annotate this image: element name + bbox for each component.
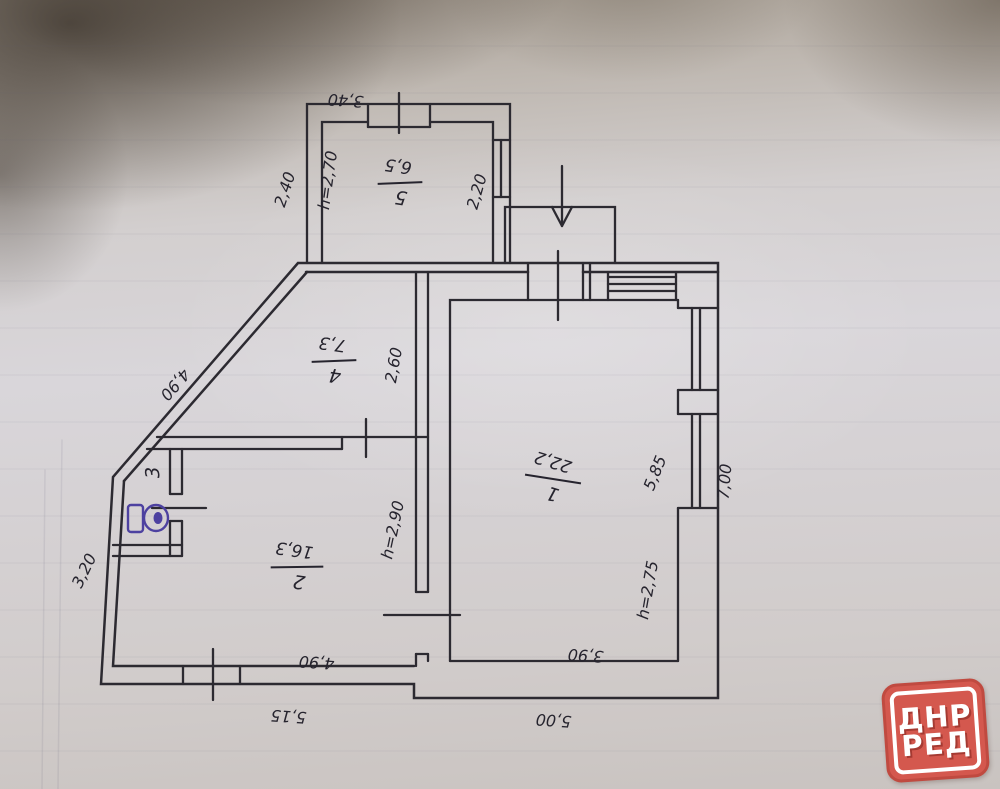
room1-label: 1 22,2 (519, 445, 588, 511)
dimension-labels: 3,40 2,40 2,20 4,90 3,20 2,60 5,85 7,00 … (68, 90, 736, 731)
room1-height: h=2,75 (633, 559, 662, 621)
interior-walls (113, 263, 678, 666)
room5-label: 5 6,5 (375, 153, 426, 211)
entrance-porch (505, 207, 615, 263)
floor-plan-drawing: 3,40 2,40 2,20 4,90 3,20 2,60 5,85 7,00 … (0, 0, 1000, 789)
dim-room1-bottom: 3,90 (567, 645, 604, 666)
dim-bottom-left: 5,15 (270, 706, 307, 727)
room-labels: 1 22,2 h=2,75 2 16,3 h=2,90 3 4 7,3 5 (142, 150, 663, 621)
dim-diagonal-wall: 4,90 (156, 365, 194, 404)
photographed-paper: 3,40 2,40 2,20 4,90 3,20 2,60 5,85 7,00 … (0, 0, 1000, 789)
room5-area: 6,5 (384, 154, 414, 178)
room2-label: 2 16,3 (268, 537, 327, 596)
room4-label: 4 7,3 (309, 331, 360, 389)
watermark-frame: ДНР РЕД (889, 686, 982, 775)
room2-height: h=2,90 (377, 499, 408, 561)
door-ticks (152, 93, 558, 700)
room5-height: h=2,70 (314, 150, 341, 211)
paper-bleed-lines (42, 440, 62, 789)
dim-right-wall: 7,00 (714, 463, 736, 500)
room3-number: 3 (142, 466, 165, 480)
room1-number: 1 (544, 481, 562, 506)
dim-room2-bottom: 4,90 (298, 652, 335, 673)
dim-hall-width: 2,60 (381, 346, 406, 384)
watermark-line2: РЕД (901, 728, 973, 759)
room1-area: 22,2 (532, 446, 574, 476)
dim-bottom-right: 5,00 (535, 710, 572, 731)
watermark-stamp: ДНР РЕД (881, 678, 991, 784)
room2-number: 2 (291, 570, 306, 593)
room4-area: 7,3 (318, 332, 348, 356)
room5-number: 5 (394, 186, 409, 209)
dim-room5-left: 2,40 (270, 169, 299, 209)
dim-room1-right: 5,85 (639, 453, 670, 493)
dim-left-wall: 3,20 (68, 550, 101, 590)
dim-room5-top: 3,40 (327, 90, 364, 111)
entrance-arrow-icon (552, 166, 572, 226)
dim-room5-right: 2,20 (463, 172, 491, 211)
room2-area: 16,3 (274, 537, 314, 562)
building-outline (101, 263, 718, 698)
room4-number: 4 (328, 364, 343, 387)
